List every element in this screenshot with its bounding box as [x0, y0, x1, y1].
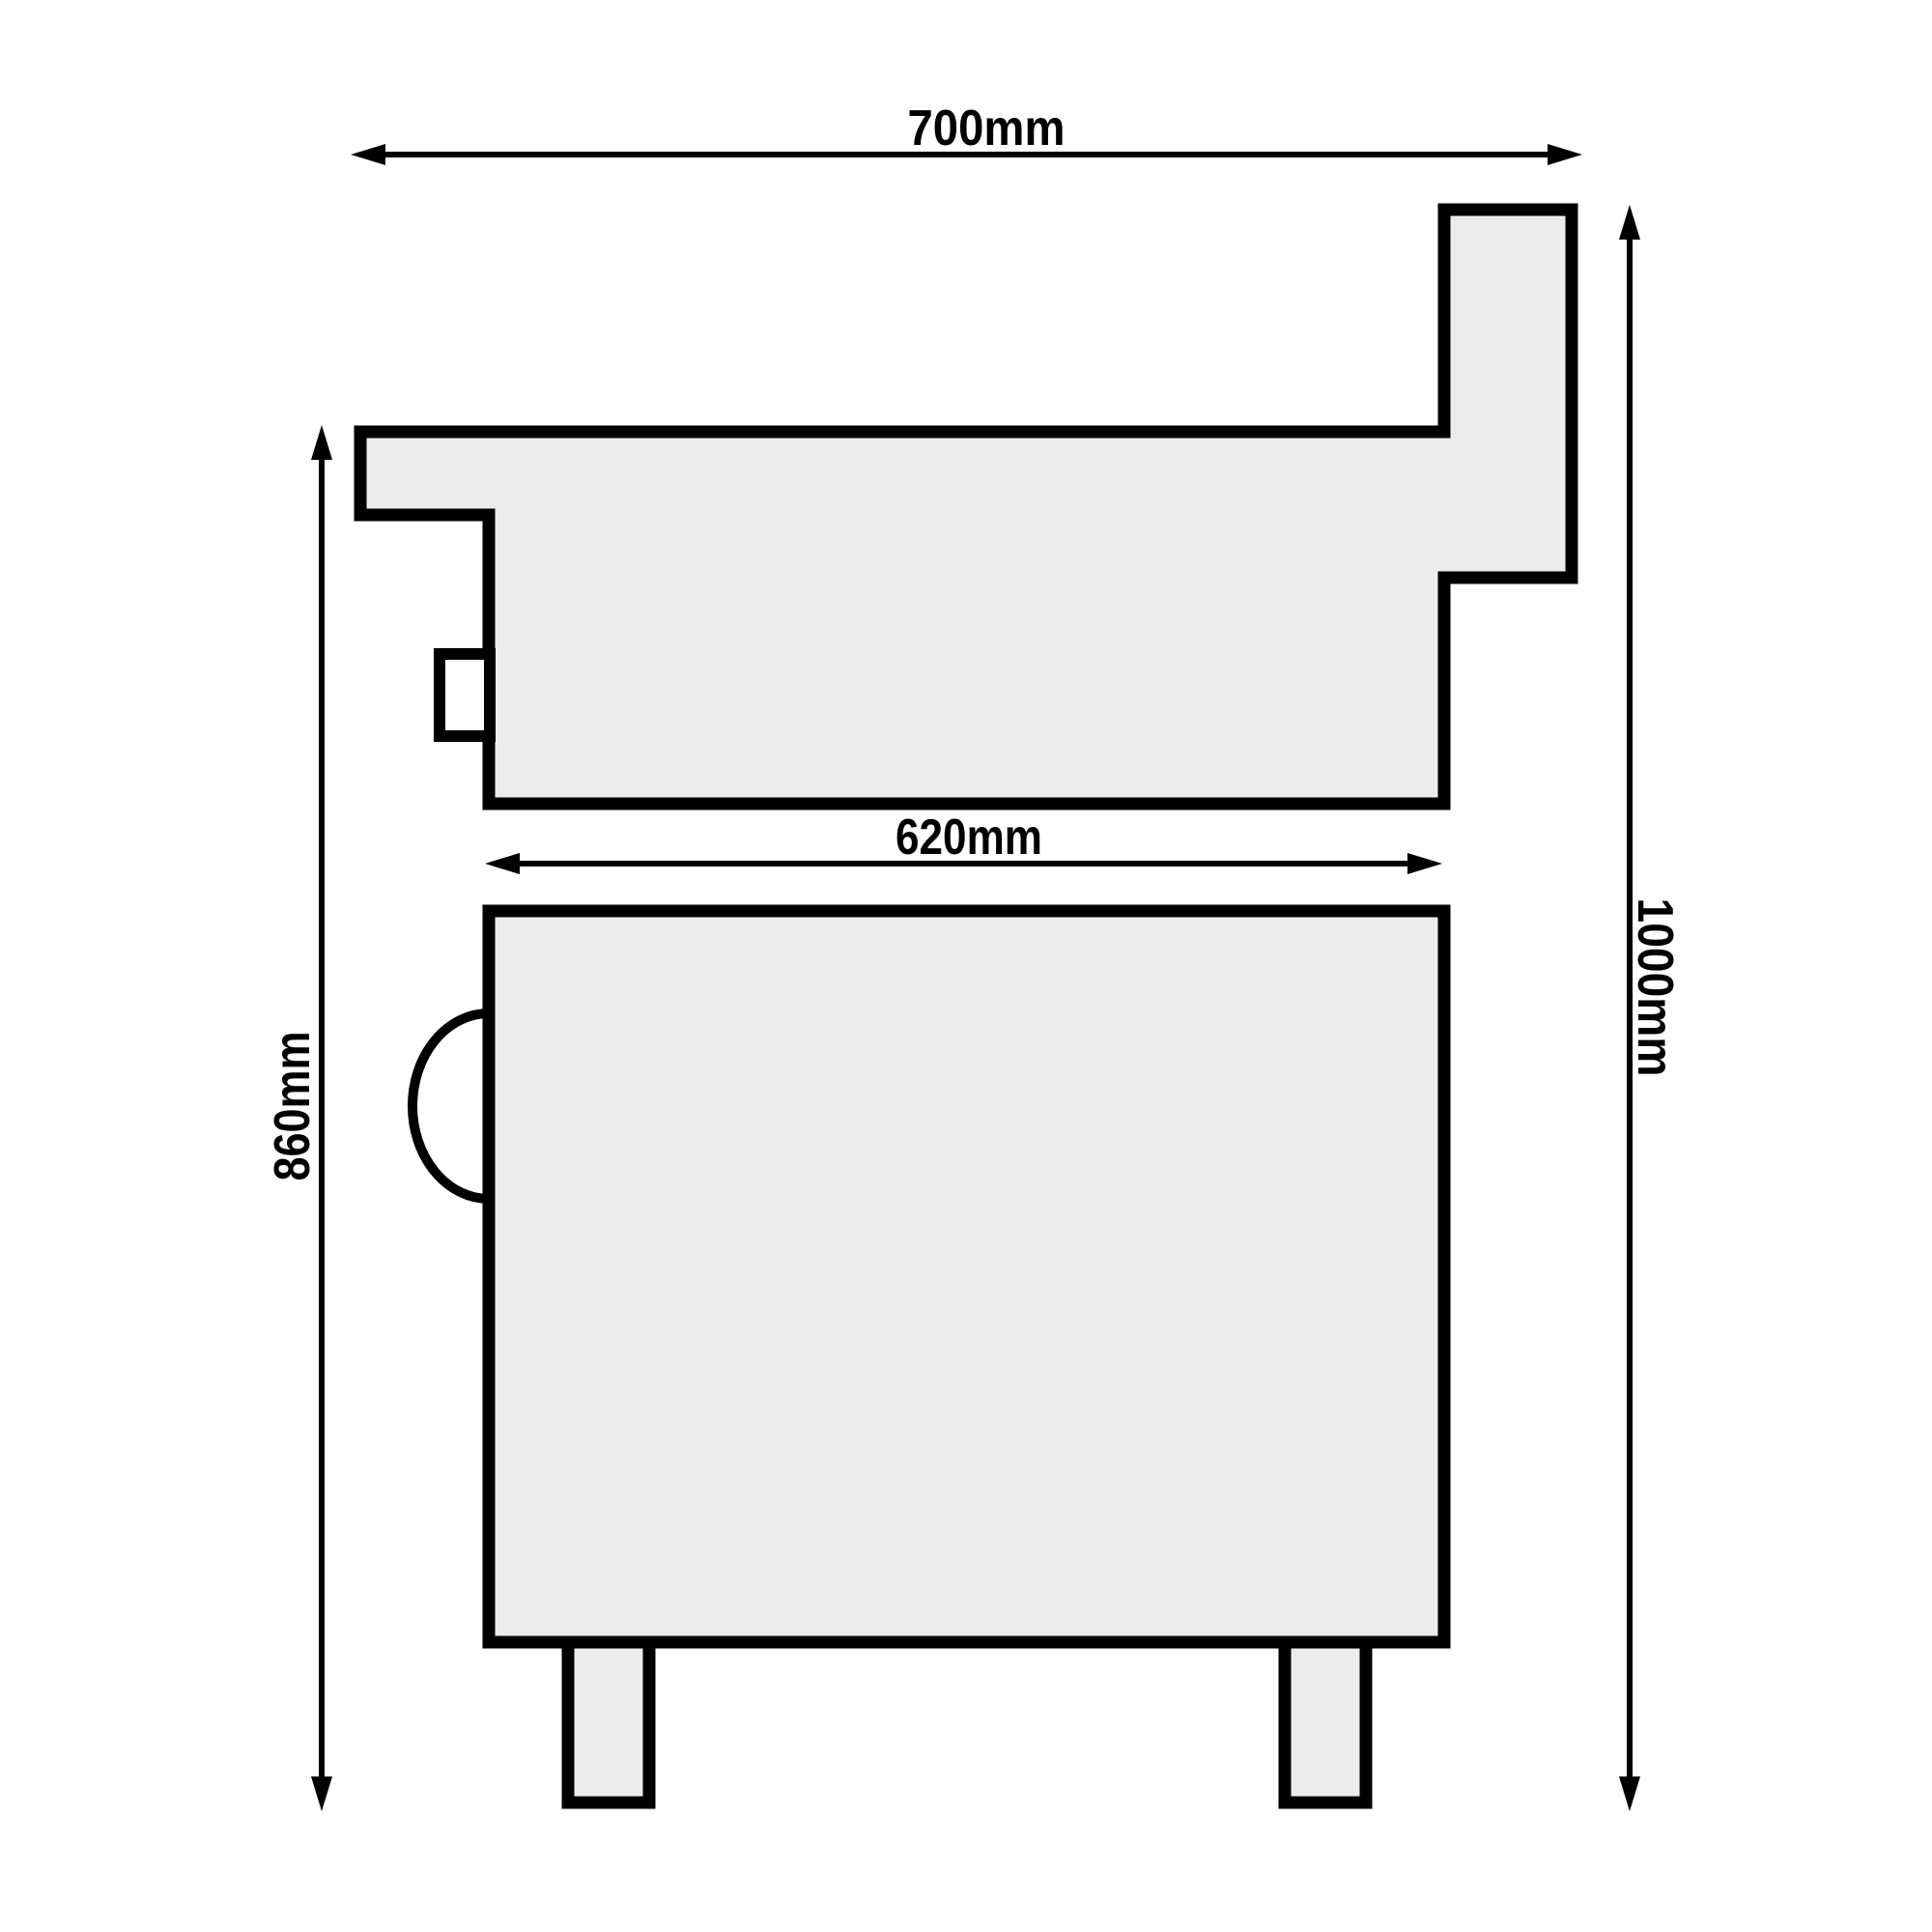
arrowhead-up-icon [311, 425, 332, 460]
dimension-lower-body-width: 620mm [485, 810, 1442, 874]
dimension-label-lower-body-width: 620mm [895, 810, 1042, 866]
arrowhead-right-icon [1548, 144, 1582, 165]
arrowhead-up-icon [1619, 205, 1640, 240]
arrowhead-down-icon [311, 1776, 332, 1811]
dimension-label-total-height: 1000mm [1627, 898, 1683, 1077]
dimension-label-top-width: 700mm [908, 100, 1065, 156]
arrowhead-left-icon [351, 144, 385, 165]
right-foot [1285, 1642, 1366, 1803]
dimension-total-height: 1000mm [1619, 205, 1683, 1811]
dimension-drawing: 700mm 620mm 860mm 1000mm [0, 0, 1932, 1932]
side-handle-arc [412, 1013, 489, 1199]
upper-unit-outline [360, 210, 1572, 804]
arrowhead-right-icon [1407, 853, 1442, 874]
dimension-label-lower-body-height: 860mm [265, 1032, 321, 1181]
arrowhead-down-icon [1619, 1776, 1640, 1811]
base-cabinet-outline [489, 911, 1444, 1642]
dimension-top-width: 700mm [351, 100, 1582, 165]
left-foot [568, 1642, 649, 1803]
dimension-lower-body-height: 860mm [265, 425, 332, 1811]
arrowhead-left-icon [485, 853, 520, 874]
side-control-knob [440, 654, 490, 736]
